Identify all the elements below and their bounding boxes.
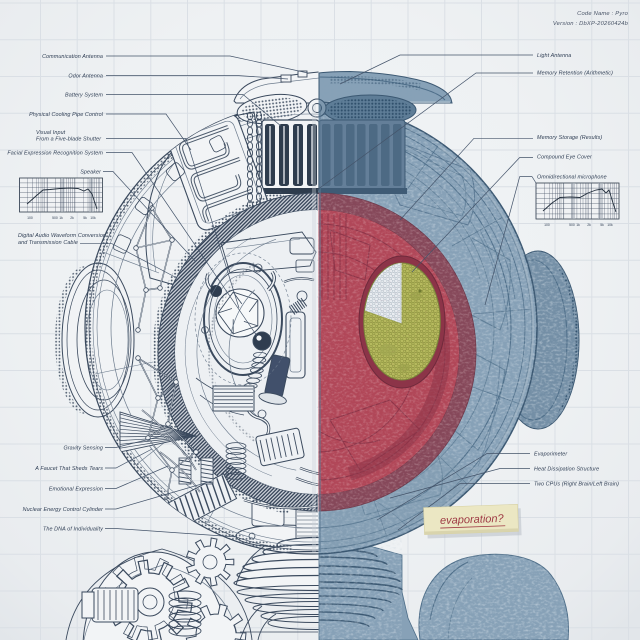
svg-text:5k: 5k: [600, 223, 604, 227]
svg-text:Heat Dissipation Structure: Heat Dissipation Structure: [534, 467, 599, 473]
svg-text:Physical Cooling Pipe Control: Physical Cooling Pipe Control: [29, 112, 104, 118]
svg-text:Omnidirectional microphone: Omnidirectional microphone: [537, 174, 607, 180]
svg-text:1k: 1k: [59, 216, 63, 220]
svg-text:evaporation?: evaporation?: [440, 513, 505, 527]
svg-text:Version : DbXP-20260424b: Version : DbXP-20260424b: [553, 21, 629, 27]
svg-text:500: 500: [569, 223, 575, 227]
svg-text:Emotional Expression: Emotional Expression: [49, 487, 103, 493]
svg-text:The DNA of Individuality: The DNA of Individuality: [43, 527, 103, 533]
svg-text:10k: 10k: [607, 223, 613, 227]
svg-text:Nuclear Energy Control Cylinde: Nuclear Energy Control Cylinder: [23, 507, 104, 513]
svg-text:and Transmission Cable: and Transmission Cable: [18, 240, 78, 246]
svg-text:2k: 2k: [587, 223, 591, 227]
svg-text:2k: 2k: [70, 216, 74, 220]
svg-text:Battery System: Battery System: [65, 93, 103, 99]
svg-text:10k: 10k: [90, 216, 96, 220]
svg-text:From a Five-blade Shutter: From a Five-blade Shutter: [36, 137, 101, 143]
svg-text:Compound Eye Cover: Compound Eye Cover: [537, 155, 592, 161]
svg-text:A Faucet That Sheds Tears: A Faucet That Sheds Tears: [34, 466, 103, 472]
svg-text:Speaker: Speaker: [80, 170, 101, 176]
svg-text:5k: 5k: [83, 216, 87, 220]
svg-text:Facial Expression Recognition: Facial Expression Recognition System: [7, 151, 103, 157]
svg-text:Memory Storage (Results): Memory Storage (Results): [537, 135, 602, 141]
svg-text:Digital Audio Waveform Convers: Digital Audio Waveform Conversion: [18, 233, 106, 239]
svg-text:100: 100: [27, 216, 33, 220]
svg-text:Gravity Sensing: Gravity Sensing: [63, 446, 103, 452]
svg-text:1k: 1k: [576, 223, 580, 227]
svg-text:100: 100: [544, 223, 550, 227]
svg-text:Communication Antenna: Communication Antenna: [42, 54, 103, 60]
svg-text:Memory Retention (Arithmetic): Memory Retention (Arithmetic): [537, 71, 613, 77]
svg-text:Two CPUs (Right Brain/Left Bra: Two CPUs (Right Brain/Left Brain): [534, 482, 619, 488]
svg-text:Evaporimeter: Evaporimeter: [534, 452, 567, 458]
svg-text:Code Name : Pyro: Code Name : Pyro: [577, 11, 628, 17]
svg-text:Odor Antenna: Odor Antenna: [68, 74, 103, 80]
svg-text:500: 500: [52, 216, 58, 220]
svg-text:Light Antenna: Light Antenna: [537, 53, 571, 59]
svg-text:Visual Input: Visual Input: [36, 130, 66, 136]
